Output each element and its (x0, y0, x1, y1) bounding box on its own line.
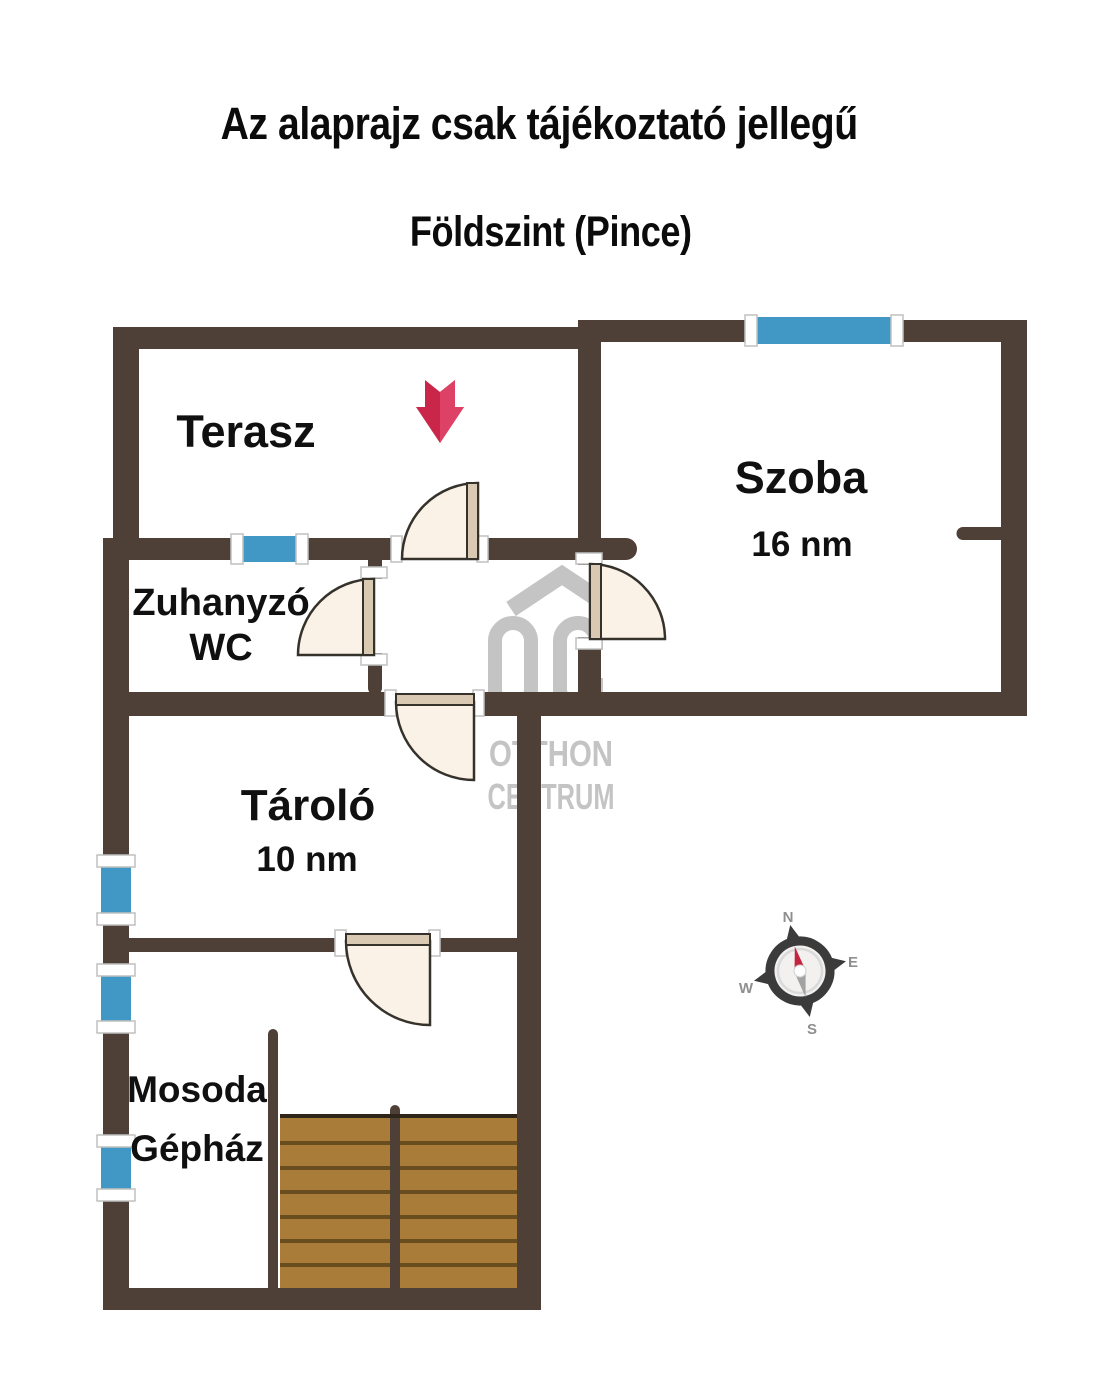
wall-segment (113, 327, 139, 560)
compass-rose-icon: N E W S (739, 909, 858, 1038)
door-jamb (361, 567, 387, 578)
room-label-mosoda: Mosoda (127, 1069, 267, 1110)
wall-segment (430, 938, 517, 952)
stair-top-edge (280, 1114, 517, 1118)
stair-seam (400, 1263, 517, 1267)
wall-segment (103, 1288, 541, 1310)
window-jamb (745, 315, 757, 346)
room-label-wc: WC (189, 627, 252, 669)
window-glass (755, 317, 893, 344)
wall-segment (1001, 320, 1027, 714)
wall-segment (474, 692, 1027, 716)
stair-side-wall (268, 1034, 278, 1288)
stair-seam (280, 1141, 390, 1145)
door-leaf (467, 483, 478, 559)
floorplan-canvas: Az alaprajz csak tájékoztató jellegű Föl… (0, 0, 1100, 1380)
door-jamb (335, 930, 346, 956)
door-arc-szoba (576, 553, 665, 649)
compass-label-w: W (739, 980, 754, 997)
wall-segment (578, 320, 755, 342)
door-arc-zuhanyzo (298, 567, 387, 665)
room-area-tarolo: 10 nm (256, 840, 357, 879)
entrance-arrow-highlight (440, 380, 464, 443)
stair-seam (280, 1215, 390, 1219)
door-jamb (391, 536, 402, 562)
window-jamb (97, 964, 135, 976)
window-marker-zuhanyzo (231, 534, 308, 564)
window-glass (242, 536, 298, 562)
window-jamb (231, 534, 243, 564)
wall-stub-cap (615, 538, 637, 560)
window-marker-tarolo (97, 855, 135, 925)
door-arc-tarolo (385, 690, 484, 780)
wall-segment (478, 538, 626, 560)
stair-divider-wall (390, 1110, 400, 1288)
wall-segment (103, 692, 396, 716)
compass-label-e: E (848, 954, 858, 971)
door-leaf (363, 579, 374, 655)
stair-seam (280, 1239, 390, 1243)
compass-label-s: S (807, 1021, 817, 1038)
room-label-gephaz: Gépház (130, 1128, 264, 1169)
room-label-terasz: Terasz (176, 406, 315, 457)
wall-stub-cap (390, 1105, 400, 1115)
window-marker-mosoda-upper (97, 964, 135, 1033)
window-glass (101, 1146, 131, 1190)
stair-seam (280, 1190, 390, 1194)
window-jamb (97, 855, 135, 867)
stair-seam (280, 1166, 390, 1170)
stair-seam (280, 1263, 390, 1267)
window-jamb (891, 315, 903, 346)
door-swing (396, 702, 474, 780)
compass-label-n: N (783, 909, 794, 926)
stair-seam (400, 1141, 517, 1145)
door-leaf (346, 934, 430, 945)
window-jamb (296, 534, 308, 564)
compass-body (744, 915, 855, 1026)
entrance-arrow-icon (416, 380, 464, 443)
window-jamb (97, 913, 135, 925)
stair-seam (400, 1166, 517, 1170)
window-marker-szoba (745, 315, 903, 346)
room-area-szoba: 16 nm (751, 525, 852, 564)
wall-segment (103, 538, 129, 856)
wall-stub-cap (957, 527, 970, 540)
wall-stub-cap (268, 1029, 278, 1039)
room-label-tarolo: Tároló (241, 781, 375, 830)
wall-segment (578, 320, 601, 565)
wall-segment (113, 327, 578, 349)
door-swing (346, 941, 430, 1025)
door-jamb (385, 690, 396, 716)
stair-seam (400, 1239, 517, 1243)
door-jamb (576, 553, 602, 564)
door-arc-mosoda (335, 930, 440, 1025)
room-label-zuhanyzo: Zuhanyzó (132, 582, 309, 624)
door-leaf (396, 694, 474, 705)
watermark-otthon: OTTHON (489, 733, 613, 774)
door-arc-terasz (391, 483, 488, 562)
wall-segment (103, 1032, 129, 1136)
stair-seam (400, 1215, 517, 1219)
window-glass (101, 866, 131, 914)
watermark-centrum: CENTRUM (488, 776, 615, 817)
floorplan-drawing: OTTHON CENTRUM (0, 0, 1100, 1380)
wall-segment (517, 692, 541, 1310)
window-jamb (97, 1189, 135, 1201)
door-leaf (590, 564, 601, 639)
wall-segment (297, 538, 400, 560)
wall-segment (103, 938, 346, 952)
room-label-szoba: Szoba (735, 452, 868, 503)
stair-seam (400, 1190, 517, 1194)
window-glass (101, 975, 131, 1022)
window-jamb (97, 1021, 135, 1033)
